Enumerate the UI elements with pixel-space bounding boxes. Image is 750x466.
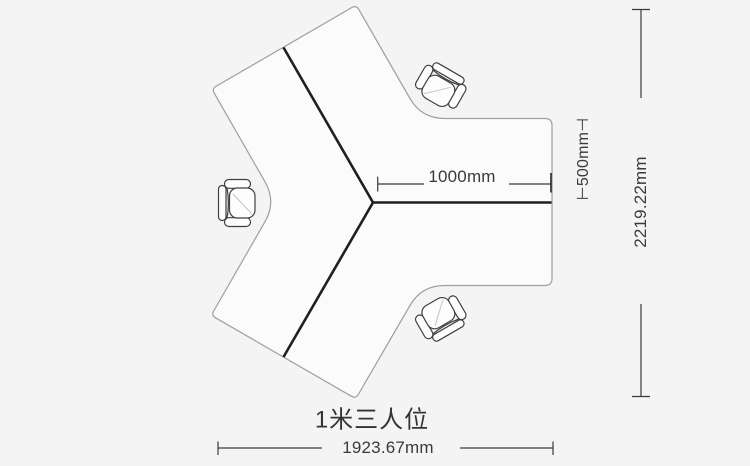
chair-left xyxy=(219,180,256,227)
dimension-500mm-label: ⊢500mm⊣ xyxy=(573,118,593,201)
caption: 1米三人位 xyxy=(315,400,429,435)
dimension-1000mm-label: 1000mm xyxy=(428,167,495,187)
dimension-width-label: 1923.67mm xyxy=(342,438,434,458)
chair-top-right xyxy=(412,58,471,113)
product-dimension-diagram: 1000mm ⊢500mm⊣ 2219.22mm 1米三人位 1923.67mm xyxy=(0,0,750,466)
chair-bottom-right xyxy=(412,290,471,345)
dimension-height-label: 2219.22mm xyxy=(631,156,651,248)
